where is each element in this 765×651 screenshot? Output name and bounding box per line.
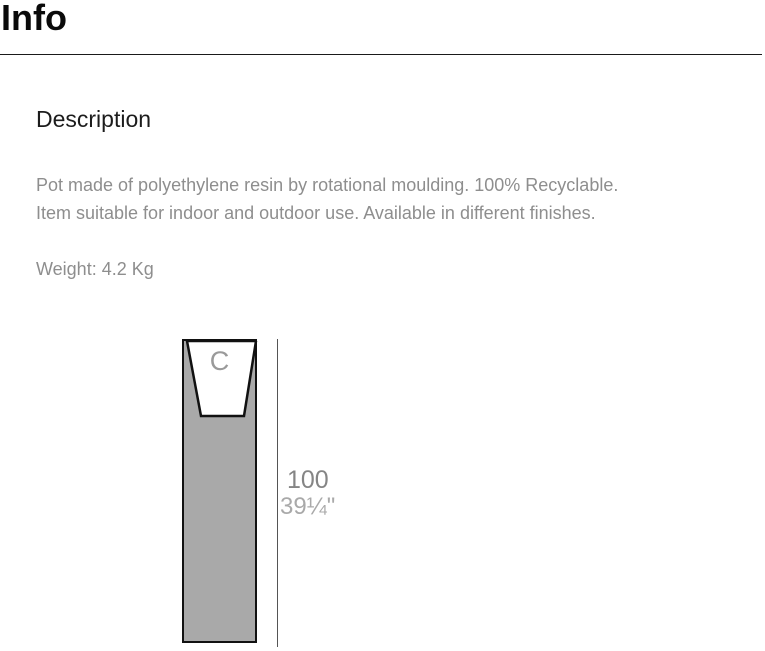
weight-text: Weight: 4.2 Kg — [36, 255, 154, 283]
pot-diagram-body: C — [182, 339, 257, 643]
description-text-line-2: Item suitable for indoor and outdoor use… — [36, 199, 596, 227]
dimension-value-cm: 100 — [287, 466, 329, 494]
description-text-line-1: Pot made of polyethylene resin by rotati… — [36, 171, 618, 199]
section-title-description: Description — [36, 105, 151, 133]
page-title: Info — [1, 0, 67, 39]
header-divider — [0, 54, 762, 55]
dimension-value-inches: 39¼" — [280, 493, 335, 521]
cavity-label: C — [184, 347, 255, 375]
dimension-line — [277, 339, 278, 647]
